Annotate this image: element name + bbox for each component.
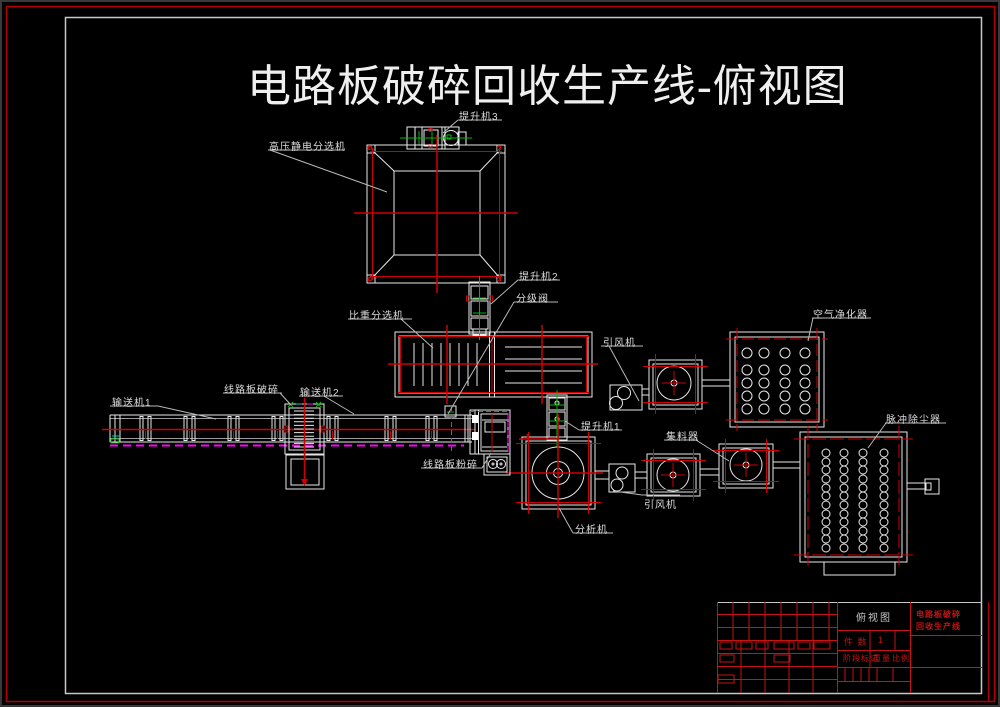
label-draft-fan-bottom: 引风机	[644, 496, 677, 511]
label-collector: 集料器	[666, 428, 699, 443]
gravity-separator-screens	[505, 347, 582, 383]
titleblock-weight-label: 重量	[873, 653, 891, 664]
label-pulse-dust-collector: 脉冲除尘器	[886, 411, 941, 426]
cad-drawing-canvas: 电路板破碎回收生产线-俯视图 提升机3 高压静电分选机 提升机2 分级阀 比重分…	[0, 0, 1000, 707]
collector-unit	[700, 439, 800, 493]
label-hoist1: 提升机1	[581, 418, 621, 433]
titleblock-scale-label: 比例	[892, 653, 910, 664]
drawing-title: 电路板破碎回收生产线-俯视图	[247, 50, 848, 114]
air-purifier-holes	[742, 348, 810, 414]
draft-fan-cyclone-top	[642, 354, 708, 414]
pulse-dust-collector-machine	[794, 426, 939, 575]
label-analyzer: 分析机	[575, 521, 608, 536]
titleblock-view-name: 俯视图	[856, 609, 892, 624]
pcb-crusher-machine	[285, 398, 324, 489]
titleblock-quantity-value: 1	[878, 635, 884, 645]
label-classifier-valve: 分级阀	[516, 290, 549, 305]
label-hoist3: 提升机3	[459, 108, 499, 123]
titleblock-project-line2: 回收生产线	[916, 621, 961, 632]
draft-fan-bottom-box	[595, 464, 647, 492]
label-hoist2: 提升机2	[519, 268, 559, 283]
electrostatic-separator-machine	[354, 135, 518, 293]
label-draft-fan-top: 引风机	[603, 334, 636, 349]
hoist-3-machine	[400, 127, 472, 149]
dust-collector-holes	[822, 449, 888, 552]
titleblock-project-line1: 电路板破碎	[916, 609, 961, 620]
air-purifier-machine	[702, 328, 828, 431]
label-electrostatic-separator: 高压静电分选机	[269, 138, 346, 153]
hoist-2-machine	[467, 276, 493, 340]
label-gravity-separator: 比重分选机	[349, 307, 404, 322]
label-pcb-pulverizer: 线路板粉碎	[423, 456, 478, 471]
label-conveyor1: 输送机1	[112, 394, 152, 409]
fan-unit-bottom	[641, 449, 706, 501]
label-pcb-crusher: 线路板破碎	[224, 381, 279, 396]
titleblock-quantity-label: 件 数	[844, 635, 868, 648]
label-air-purifier: 空气净化器	[813, 306, 868, 321]
label-conveyor2: 输送机2	[300, 384, 340, 399]
